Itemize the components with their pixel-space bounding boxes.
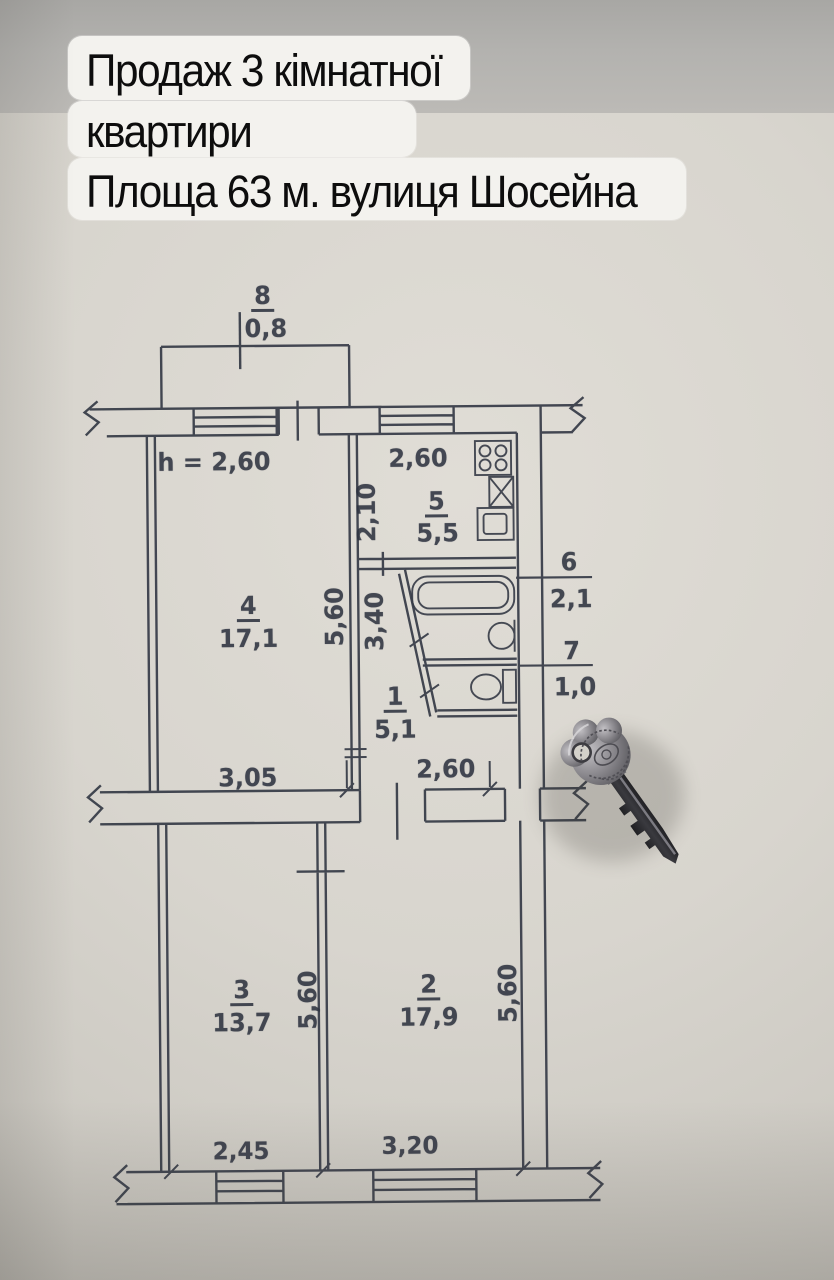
room-8-number-label: 8 [219, 281, 306, 313]
room-5-area-label: 5,5 [394, 518, 481, 548]
room-3-area-label: 13,7 [199, 1008, 286, 1038]
toilet-icon [471, 674, 501, 699]
dim-room3-width: 2,45 [198, 1137, 285, 1166]
room-3-number-label: 3 [198, 975, 285, 1007]
room-7-number-label: 7 [528, 636, 615, 666]
dim-hall-width: 2,60 [402, 754, 489, 784]
ceiling-height-label: h = 2,60 [157, 447, 270, 477]
room-6-area-label: 2,1 [528, 584, 615, 614]
dim-room4-depth: 5,60 [320, 573, 350, 660]
room-1-area-label: 5,1 [352, 714, 439, 744]
key-photo [539, 702, 705, 883]
room-2-area-label: 17,9 [386, 1002, 473, 1032]
room-2-number-label: 2 [385, 969, 472, 1001]
room-7-area-label: 1,0 [532, 672, 619, 702]
room-4-number-label: 4 [205, 591, 292, 623]
dim-room3-depth: 5,60 [293, 957, 323, 1044]
wall-lines [84, 309, 603, 1204]
dim-room2-width: 3,20 [367, 1131, 454, 1160]
dim-kitchen-width: 2,60 [375, 443, 462, 473]
room-1-number-label: 1 [352, 681, 439, 713]
room-4-area-label: 17,1 [205, 624, 292, 654]
dim-hall-depth: 3,40 [360, 578, 390, 665]
listing-title-line-2: квартири [86, 106, 252, 158]
dim-kitchen-depth: 2,10 [352, 469, 382, 556]
basin-icon [488, 623, 514, 649]
listing-title-line-1: Продаж 3 кімнатної [86, 45, 442, 97]
stove-icon [475, 441, 511, 475]
listing-title-line-3: Площа 63 м. вулиця Шосейна [86, 166, 636, 218]
room-8-area-label: 0,8 [223, 314, 310, 344]
room-5-number-label: 5 [393, 486, 480, 518]
dim-room2-depth: 5,60 [493, 950, 523, 1037]
dim-room4-width: 3,05 [204, 763, 291, 793]
apartment-listing-photo: h = 2,60 2,60 2,10 5 5,5 6 2,1 7 1,0 4 1… [0, 0, 834, 1280]
room-6-number-label: 6 [526, 547, 613, 577]
